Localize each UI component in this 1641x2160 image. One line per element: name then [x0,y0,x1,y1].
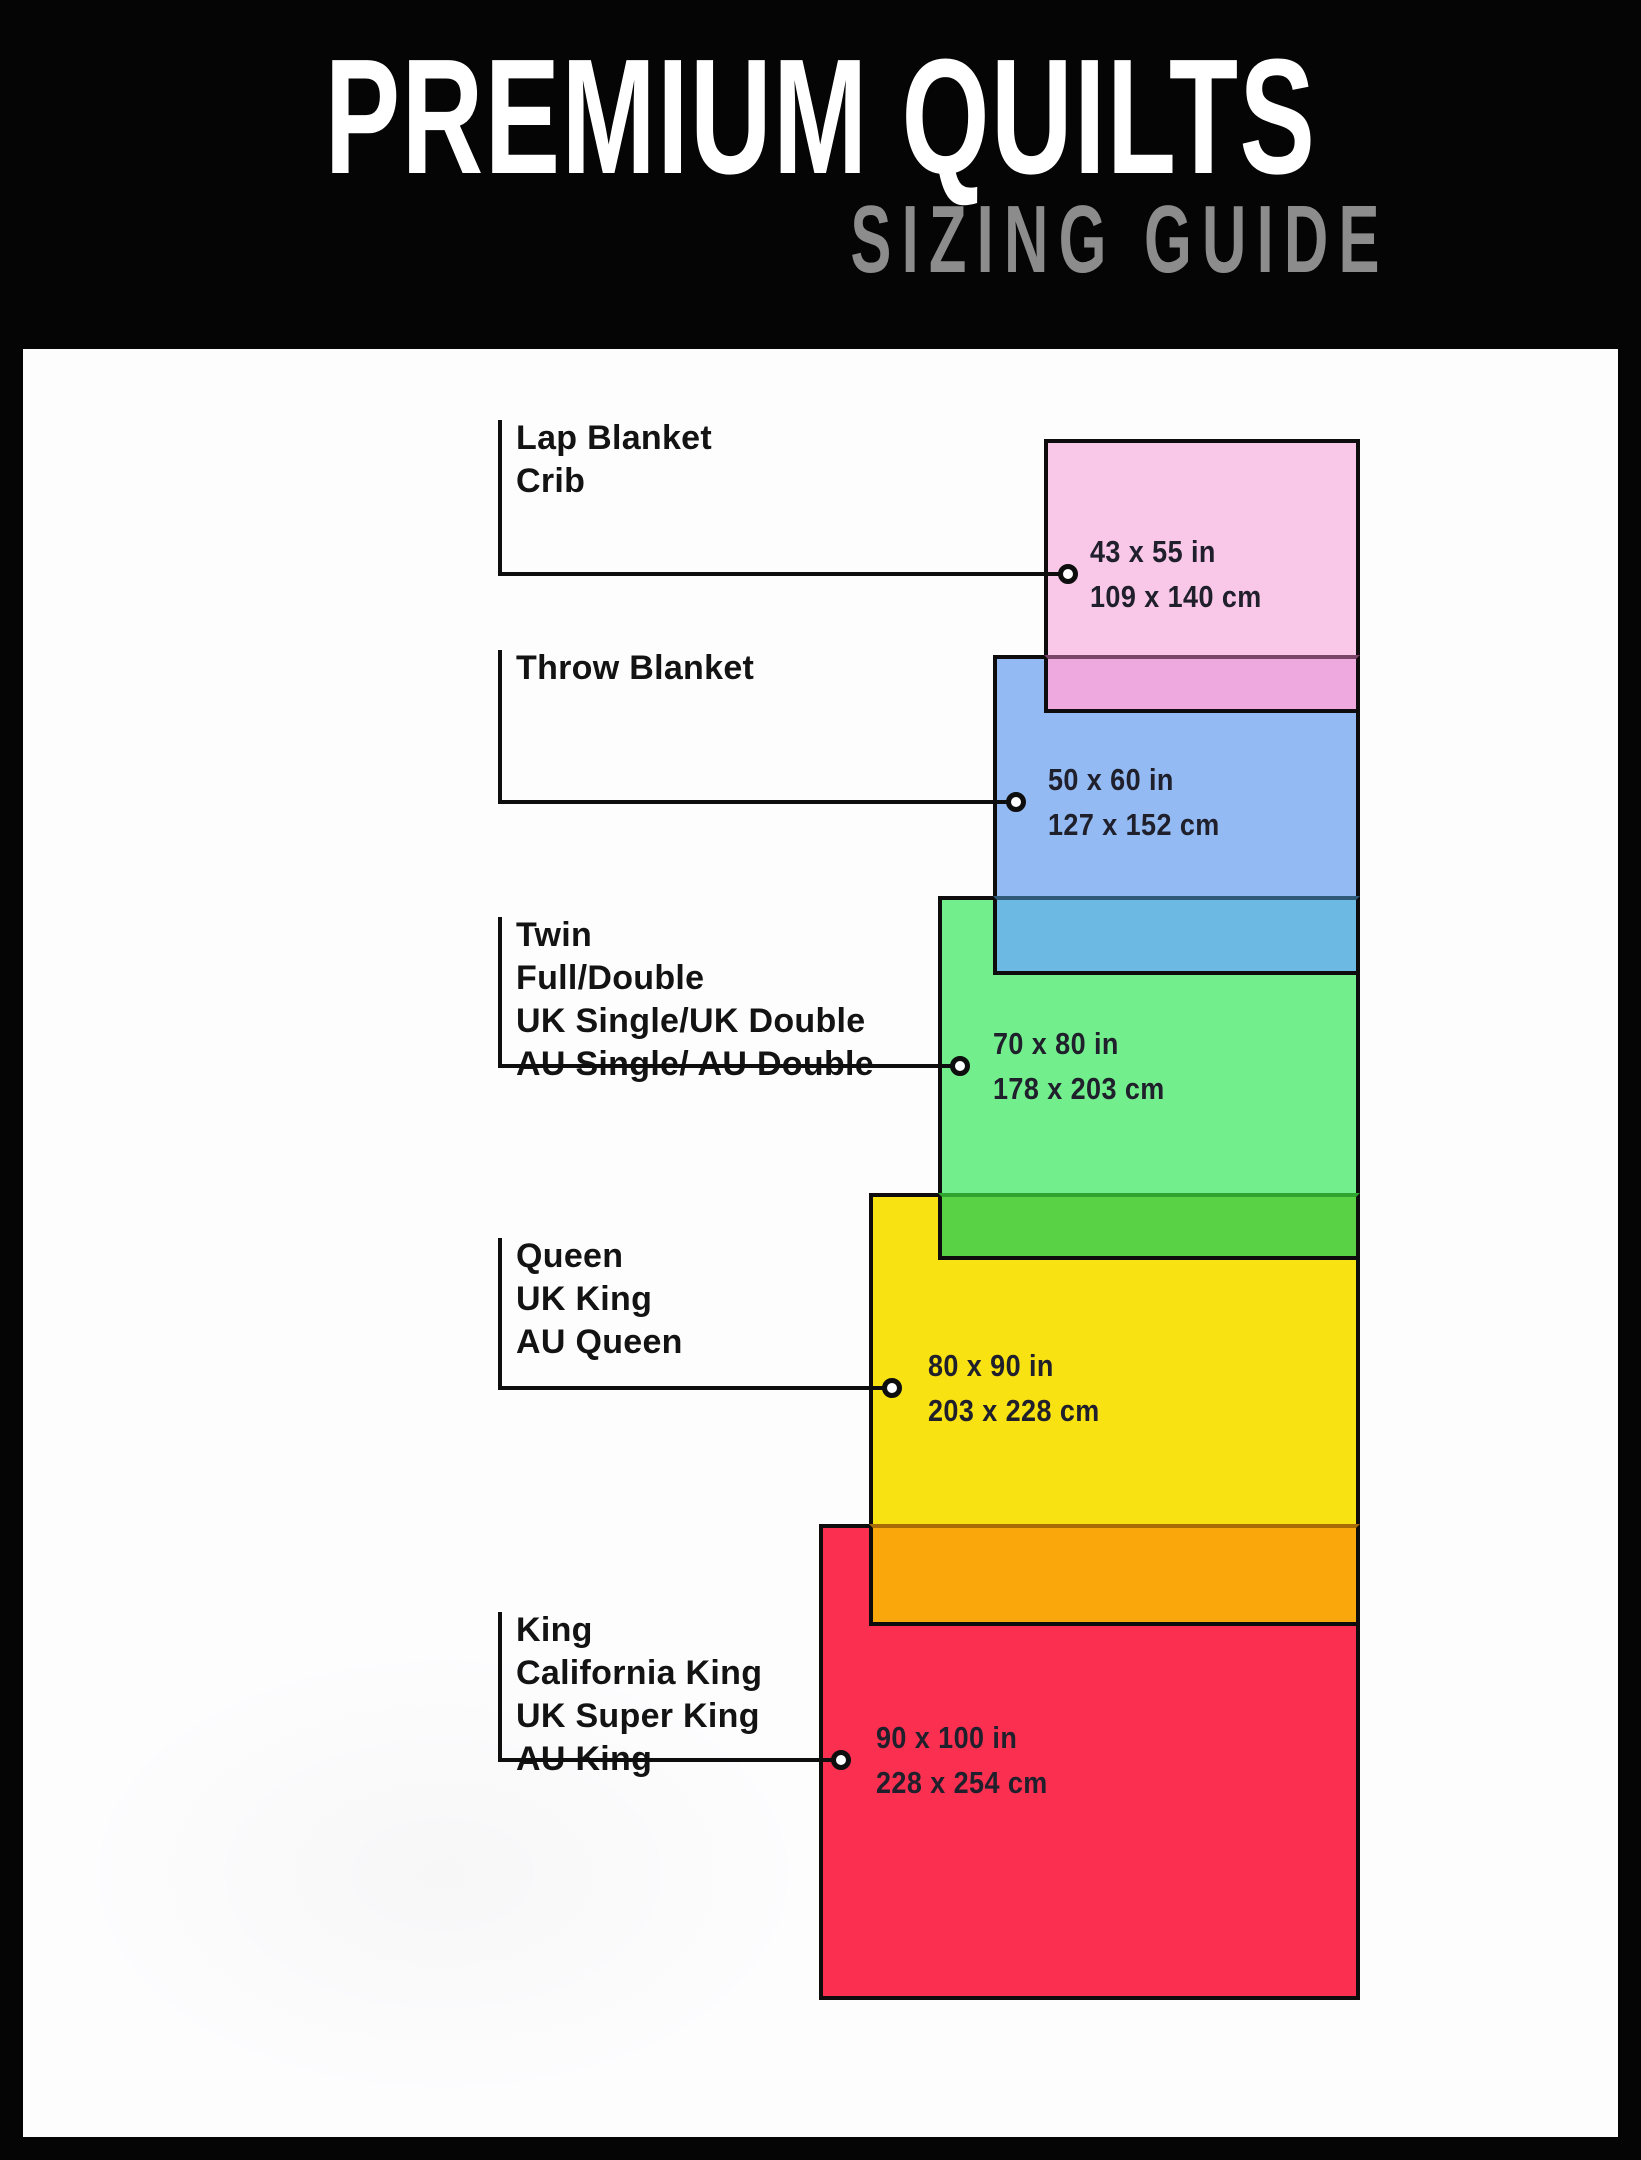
size-label-king: King California King UK Super King AU Ki… [516,1609,762,1781]
connector-hline-twin [498,1064,960,1068]
dimensions-text-king: 90 x 100 in 228 x 254 cm [876,1715,1073,1805]
marker-dot-king [831,1750,851,1770]
size-label-lap-blanket: Lap Blanket Crib [516,417,712,503]
dimensions-inches: 90 x 100 in [876,1715,1048,1760]
dimensions-inches: 80 x 90 in [928,1343,1100,1388]
page-subtitle: SIZING GUIDE [851,192,1390,288]
label-line: Throw Blanket [516,647,754,690]
header: PREMIUM QUILTS SIZING GUIDE [0,0,1641,349]
dimensions-inches: 70 x 80 in [993,1021,1165,1066]
label-line: Queen [516,1235,683,1278]
overlap-band-twin-queen [938,1193,1360,1260]
connector-vline-twin [498,917,502,1068]
label-line: King [516,1609,762,1652]
connector-hline-throw [498,800,1016,804]
dimensions-text-queen: 80 x 90 in 203 x 228 cm [928,1343,1125,1433]
size-label-queen: Queen UK King AU Queen [516,1235,683,1364]
dimensions-text-lap: 43 x 55 in 109 x 140 cm [1090,529,1287,619]
dimensions-text-twin: 70 x 80 in 178 x 203 cm [993,1021,1190,1111]
page-title: PREMIUM QUILTS [254,35,1386,199]
connector-hline-king [498,1758,841,1762]
marker-dot-queen [882,1378,902,1398]
connector-hline-queen [498,1386,892,1390]
label-line: AU Queen [516,1321,683,1364]
dimensions-cm: 228 x 254 cm [876,1760,1048,1805]
connector-hline-lap [498,572,1068,576]
connector-vline-lap [498,420,502,576]
label-line: UK Single/UK Double [516,1000,874,1043]
connector-vline-queen [498,1238,502,1390]
connector-vline-king [498,1612,502,1762]
overlap-band-queen-king [869,1524,1360,1626]
dimensions-inches: 50 x 60 in [1048,757,1220,802]
dimensions-text-throw: 50 x 60 in 127 x 152 cm [1048,757,1245,847]
connector-vline-throw [498,650,502,804]
overlap-band-lap-throw [1044,655,1360,713]
label-line: Crib [516,460,712,503]
dimensions-cm: 127 x 152 cm [1048,802,1220,847]
overlap-band-throw-twin [993,896,1360,975]
label-line: UK Super King [516,1695,762,1738]
marker-dot-lap [1058,564,1078,584]
size-label-throw-blanket: Throw Blanket [516,647,754,690]
size-label-twin: Twin Full/Double UK Single/UK Double AU … [516,914,874,1086]
dimensions-cm: 178 x 203 cm [993,1066,1165,1111]
label-line: Full/Double [516,957,874,1000]
marker-dot-throw [1006,792,1026,812]
label-line: UK King [516,1278,683,1321]
label-line: Lap Blanket [516,417,712,460]
dimensions-inches: 43 x 55 in [1090,529,1262,574]
dimensions-cm: 109 x 140 cm [1090,574,1262,619]
marker-dot-twin [950,1056,970,1076]
label-line: California King [516,1652,762,1695]
sizing-diagram-panel: Lap Blanket Crib Throw Blanket Twin Full… [23,349,1618,2137]
dimensions-cm: 203 x 228 cm [928,1388,1100,1433]
label-line: Twin [516,914,874,957]
